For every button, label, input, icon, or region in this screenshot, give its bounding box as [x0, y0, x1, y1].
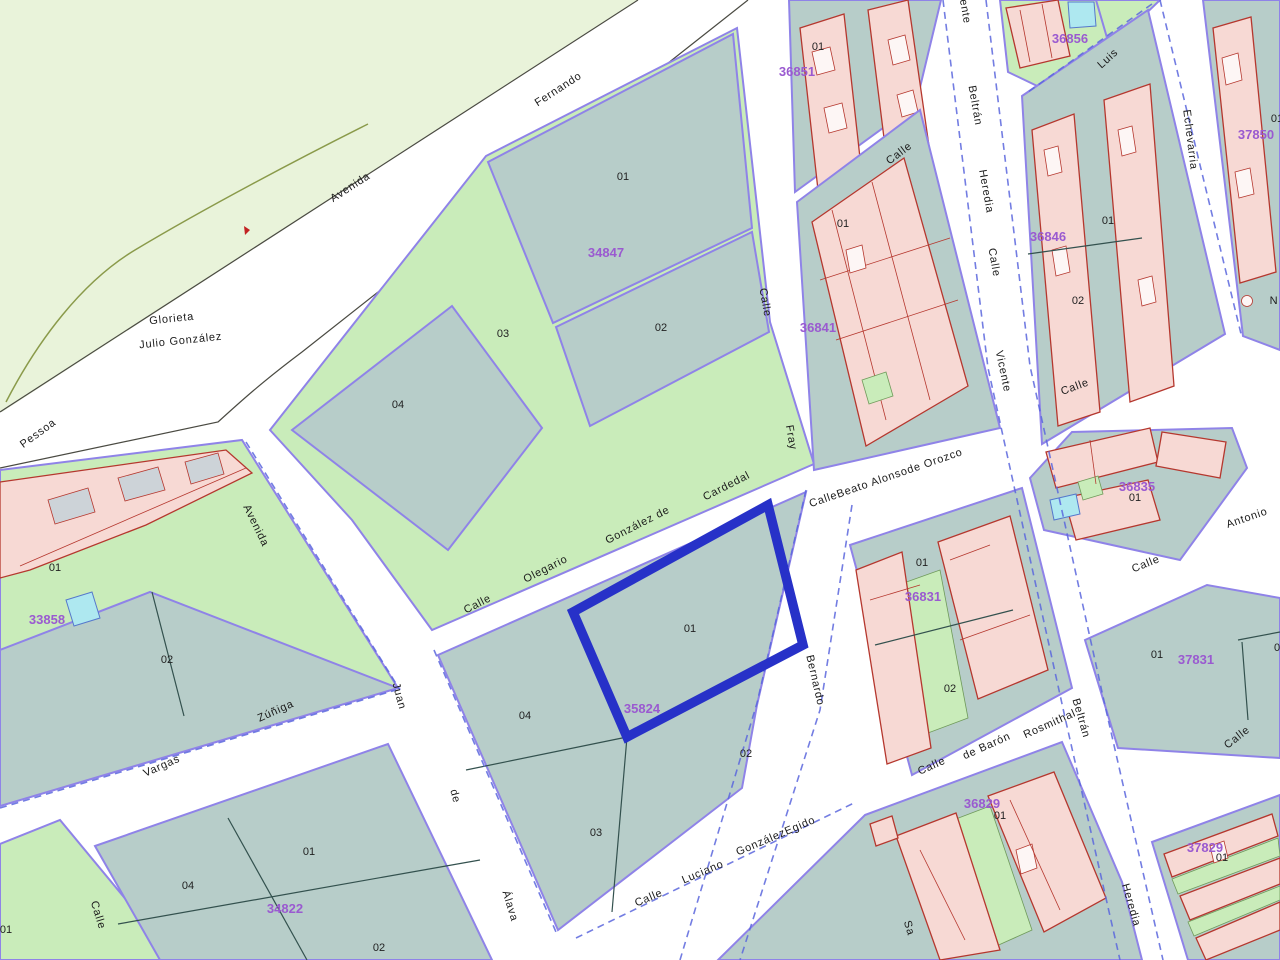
- parcel-number: 0: [1274, 642, 1280, 654]
- street-label: Antonio: [1225, 506, 1269, 531]
- parcel-number: 02: [655, 322, 667, 334]
- parcel-number: 04: [392, 399, 404, 411]
- parcel-number: 01: [1102, 215, 1114, 227]
- parcel-number: 04: [182, 880, 194, 892]
- street-label: Álava: [500, 889, 522, 923]
- street-label: Pessoa: [18, 416, 59, 450]
- street-label: Beltrán: [966, 85, 985, 127]
- street-label: Glorieta: [149, 311, 195, 328]
- parcel-number: 01: [617, 171, 629, 183]
- parcel-number: 02: [373, 942, 385, 954]
- parcel-number: 04: [519, 710, 531, 722]
- parcel-number: 02: [944, 683, 956, 695]
- block-34822-outline[interactable]: [95, 744, 492, 960]
- block-code: 36856: [1052, 31, 1088, 46]
- cadastral-map[interactable]: Fernando Avenida Glorieta Julio González…: [0, 0, 1280, 960]
- block-code: 36846: [1030, 229, 1066, 244]
- block-code: 36851: [779, 64, 815, 79]
- block-code: 33858: [29, 612, 65, 627]
- street-label: Heredia: [976, 169, 995, 215]
- block-36829: [718, 742, 1142, 960]
- street-label: Vicente: [993, 350, 1013, 394]
- parcel-number: 01: [916, 557, 928, 569]
- parcel-number: 02: [740, 748, 752, 760]
- block-code: 36841: [800, 320, 836, 335]
- street-label: de: [447, 788, 462, 804]
- block-code: 37831: [1178, 652, 1214, 667]
- street-label: Calle: [986, 247, 1003, 278]
- parcel-number: 01: [812, 41, 824, 53]
- parcel-number: 01: [49, 562, 61, 574]
- street-label: Juan: [390, 682, 409, 711]
- parcel-number: 01: [1271, 113, 1280, 125]
- parcel-number: 01: [994, 810, 1006, 822]
- street-label: Fernando: [533, 70, 584, 109]
- block-code: 37850: [1238, 127, 1274, 142]
- street-label: Bernardo: [803, 654, 826, 707]
- block-code: 37829: [1187, 840, 1223, 855]
- block-code: 34847: [588, 245, 624, 260]
- block-34822: [95, 744, 492, 960]
- block-code: 34822: [267, 901, 303, 916]
- courtyard: [1222, 53, 1242, 85]
- parcel-number: 03: [590, 827, 602, 839]
- map-viewport[interactable]: Fernando Avenida Glorieta Julio González…: [0, 0, 1280, 960]
- street-label: Calle: [633, 887, 664, 909]
- water-feature: [1068, 2, 1096, 28]
- street-label: GonzálezEgido: [734, 814, 817, 858]
- parcel-number: 01: [837, 218, 849, 230]
- parcel-number: 01: [0, 924, 12, 936]
- parcel-number: 03: [497, 328, 509, 340]
- block-code: 36831: [905, 589, 941, 604]
- street-label: Luciano: [680, 858, 725, 886]
- courtyard: [846, 245, 866, 273]
- block-code: 35824: [624, 701, 661, 716]
- parcel-number: 02: [161, 654, 173, 666]
- street-label: ente: [957, 0, 973, 25]
- block-37829: [1152, 795, 1280, 960]
- street-label: N: [1270, 295, 1279, 307]
- parcel-number: 01: [303, 846, 315, 858]
- building-detail: [1242, 296, 1253, 307]
- parcel-number: 02: [1072, 295, 1084, 307]
- street-label: Calle: [1130, 553, 1161, 575]
- street-label: Julio González: [139, 331, 223, 352]
- block-code: 36829: [964, 796, 1000, 811]
- block-code: 36835: [1119, 479, 1155, 494]
- selected-parcel-number: 01: [684, 623, 696, 635]
- parcel-number: 01: [1151, 649, 1163, 661]
